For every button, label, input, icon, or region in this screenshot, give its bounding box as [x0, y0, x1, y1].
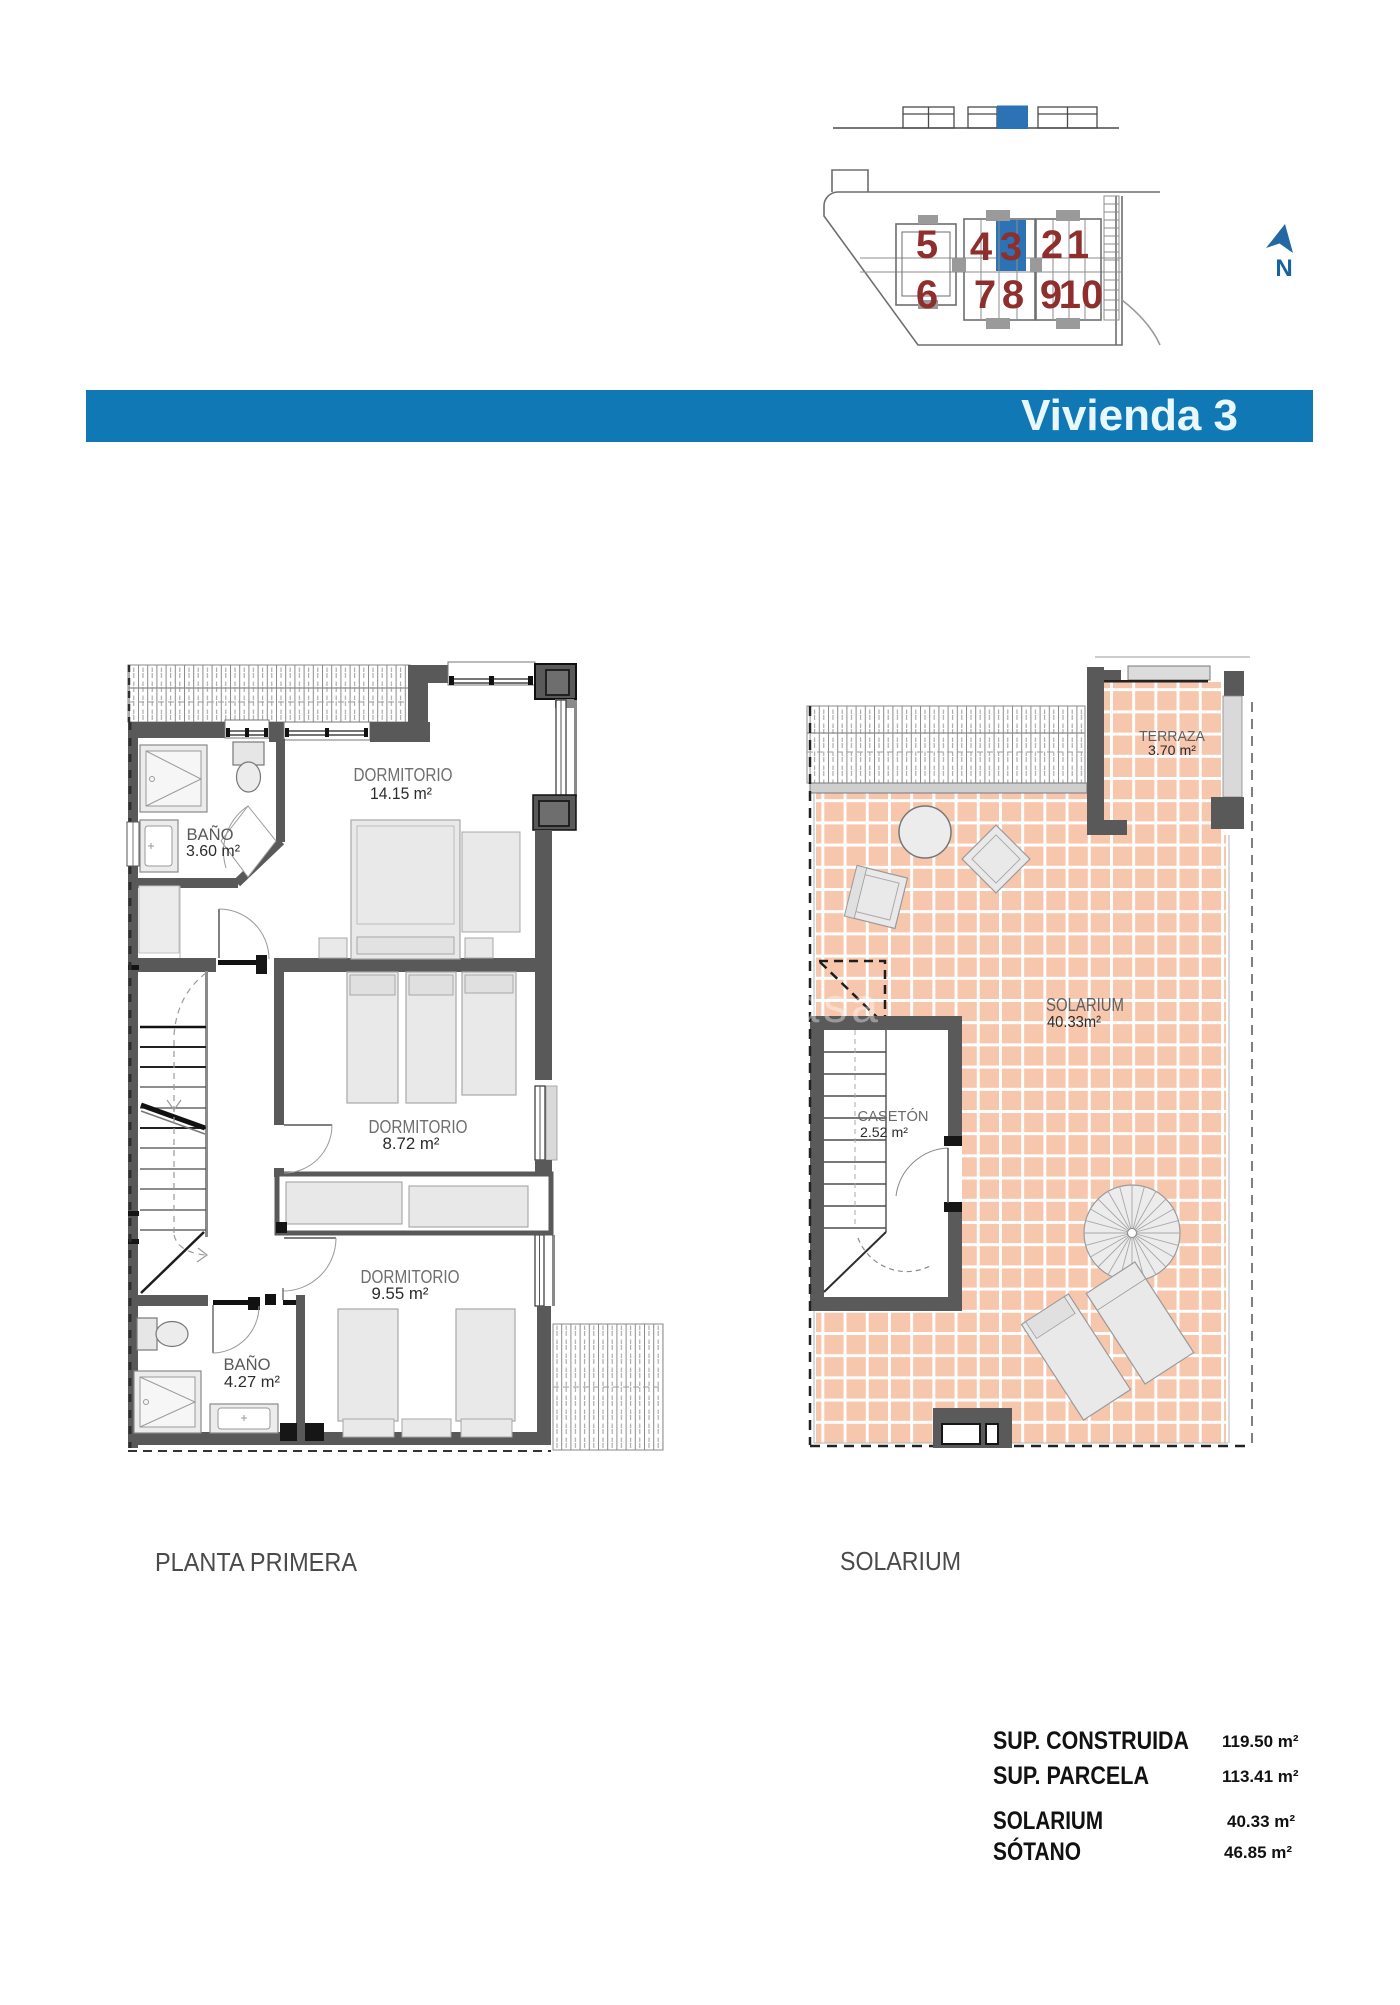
svg-text:10: 10 [1059, 273, 1104, 317]
svg-text:40.33m²: 40.33m² [1047, 1014, 1102, 1031]
svg-text:SOLARIUM: SOLARIUM [840, 1546, 961, 1576]
svg-text:3.60 m²: 3.60 m² [186, 843, 241, 860]
svg-text:7: 7 [974, 273, 996, 317]
svg-text:Vivienda 3: Vivienda 3 [1021, 391, 1238, 440]
svg-text:8: 8 [1002, 273, 1024, 317]
svg-text:SOLARIUM: SOLARIUM [993, 1807, 1103, 1835]
svg-text:9.55 m²: 9.55 m² [372, 1284, 429, 1303]
svg-text:40.33 m²: 40.33 m² [1227, 1812, 1295, 1831]
svg-text:N: N [1275, 255, 1292, 282]
svg-text:46.85 m²: 46.85 m² [1224, 1843, 1292, 1862]
svg-text:5: 5 [916, 223, 938, 267]
svg-text:BAÑO: BAÑO [187, 825, 234, 844]
svg-text:2.52 m²: 2.52 m² [860, 1124, 908, 1140]
svg-text:urbincasa: urbincasa [638, 980, 882, 1033]
svg-text:DORMITORIO: DORMITORIO [354, 765, 453, 785]
svg-text:3.70 m²: 3.70 m² [1148, 742, 1196, 758]
svg-text:1: 1 [1067, 223, 1089, 267]
svg-text:SÓTANO: SÓTANO [993, 1836, 1081, 1866]
svg-text:CASETÓN: CASETÓN [858, 1108, 929, 1125]
svg-text:BAÑO: BAÑO [224, 1355, 271, 1374]
svg-text:4.27 m²: 4.27 m² [224, 1374, 281, 1391]
svg-text:4: 4 [970, 225, 993, 269]
svg-text:3: 3 [1000, 225, 1022, 269]
svg-text:8.72 m²: 8.72 m² [383, 1134, 440, 1153]
svg-text:14.15 m²: 14.15 m² [370, 784, 432, 803]
svg-text:113.41 m²: 113.41 m² [1222, 1767, 1299, 1786]
svg-text:2: 2 [1041, 223, 1063, 267]
svg-text:SUP. PARCELA: SUP. PARCELA [993, 1762, 1149, 1790]
svg-text:SOLARIUM: SOLARIUM [1046, 995, 1124, 1015]
svg-text:6: 6 [916, 273, 938, 317]
svg-text:PLANTA PRIMERA: PLANTA PRIMERA [155, 1547, 358, 1577]
svg-text:SUP. CONSTRUIDA: SUP. CONSTRUIDA [993, 1727, 1189, 1755]
svg-text:119.50 m²: 119.50 m² [1222, 1732, 1299, 1751]
